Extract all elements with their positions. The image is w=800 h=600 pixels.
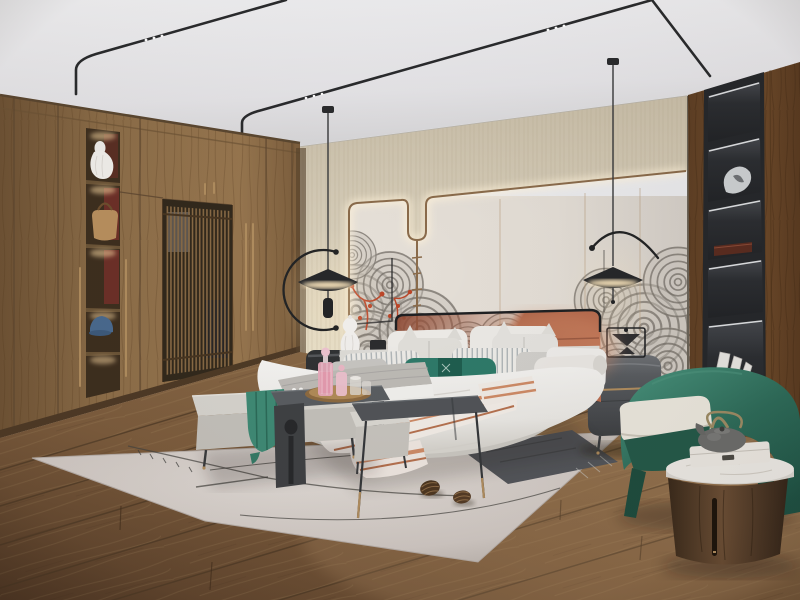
vignette-overlay <box>0 0 800 600</box>
scene-canvas <box>0 0 800 600</box>
bedroom-render <box>0 0 800 600</box>
